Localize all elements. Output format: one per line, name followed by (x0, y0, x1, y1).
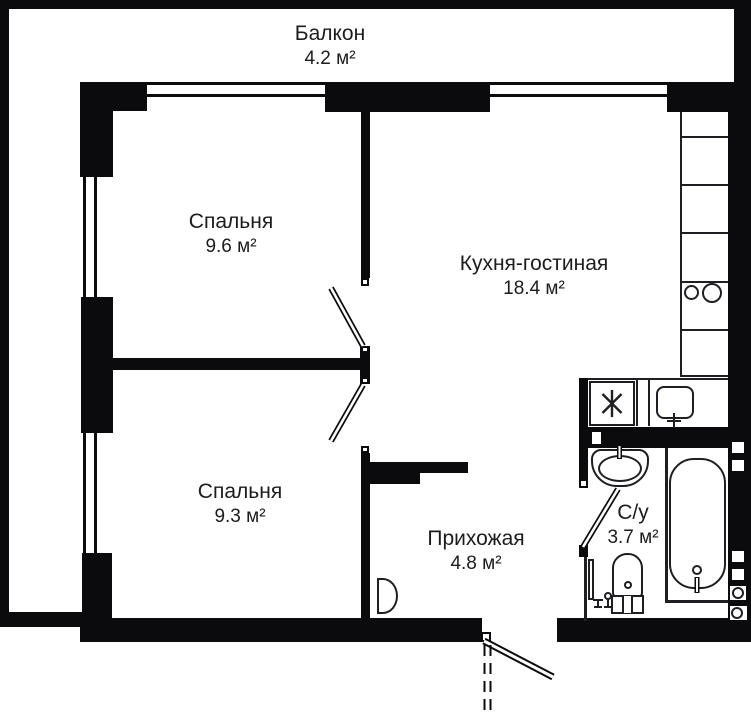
kitchen-counter-line (680, 136, 728, 138)
room-label-bedroom-1: Спальня 9.6 м² (189, 209, 273, 259)
room-label-hallway: Прихожая 4.8 м² (427, 526, 524, 576)
balcony-wall-left (0, 0, 9, 627)
kitchen-counter-line (680, 184, 728, 186)
door-leaf-icon (331, 288, 363, 346)
toilet-drain-icon (624, 581, 632, 589)
room-name: Прихожая (427, 526, 524, 552)
wall-bathroom-left-stub (579, 545, 588, 557)
vent-shaft-icon (729, 548, 747, 565)
wall-bathroom-left-thin (584, 557, 587, 621)
balcony-wall-bottom (0, 612, 82, 627)
toilet-icon (612, 553, 643, 598)
kitchen-counter-line (680, 232, 728, 234)
bathtub-drain-icon (692, 565, 702, 575)
vent-shaft-icon (589, 429, 604, 447)
room-area: 4.2 м² (295, 47, 365, 71)
room-label-bathroom: С/у 3.7 м² (607, 500, 658, 550)
riser-circle (731, 607, 743, 619)
room-label-bedroom-2: Спальня 9.3 м² (198, 479, 282, 529)
door-hinge-marker (361, 377, 369, 384)
wall-top-2 (325, 82, 490, 112)
wall-bedroom1-kitchen (361, 111, 370, 278)
wall-left-2 (81, 297, 113, 433)
balcony-wall-right (734, 0, 751, 84)
window-icon (490, 82, 667, 97)
room-area: 3.7 м² (607, 526, 658, 550)
wall-bathroom-left-upper (579, 448, 588, 479)
entrance-door-icon (484, 641, 553, 712)
door-hinge-marker (361, 446, 369, 453)
room-name: С/у (607, 500, 658, 526)
room-name: Кухня-гостиная (460, 251, 609, 277)
window-icon (83, 177, 97, 297)
cabinet-row-line (588, 378, 728, 380)
vent-shaft-icon (729, 457, 747, 474)
door-hinge-marker (481, 632, 491, 642)
balcony-wall-top (0, 0, 751, 9)
wash-basin-bowl (598, 455, 642, 482)
riser-circle (732, 587, 744, 599)
towel-rail-icon (588, 559, 594, 600)
wall-bedrooms-divider (113, 358, 361, 370)
kitchen-sink-icon (656, 386, 694, 419)
cabinet-divider-line (648, 380, 650, 426)
wall-bottom-left (80, 618, 482, 642)
room-label-balcony: Балкон 4.2 м² (295, 21, 365, 71)
vent-shaft-icon (729, 439, 747, 456)
kitchen-counter-line (680, 281, 728, 283)
room-name: Спальня (198, 479, 282, 505)
room-label-kitchen-living: Кухня-гостиная 18.4 м² (460, 251, 609, 301)
kitchen-counter-line (680, 329, 728, 331)
toilet-tank-detail (622, 596, 633, 613)
door-hinge-marker (361, 346, 369, 353)
washing-machine-icon (589, 381, 635, 426)
room-area: 9.6 м² (189, 235, 273, 259)
window-icon (147, 82, 325, 97)
wall-bathroom-top (579, 427, 751, 448)
wall-bottom-right (557, 618, 751, 642)
room-name: Балкон (295, 21, 365, 47)
cabinet-divider-line (636, 380, 638, 426)
room-area: 9.3 м² (198, 505, 282, 529)
door-arc-icon (377, 578, 398, 614)
door-hinge-marker (579, 479, 588, 488)
bathtub-niche-bottom-line (665, 600, 728, 603)
bathtub-niche-line (665, 448, 668, 603)
cooktop-icon (684, 285, 699, 300)
window-icon (83, 433, 97, 553)
vent-shaft-icon (729, 566, 747, 583)
room-area: 18.4 м² (460, 277, 609, 301)
wall-hallway-left (361, 453, 370, 621)
wall-hallway-top (370, 462, 420, 484)
room-area: 4.8 м² (427, 552, 524, 576)
water-valve-icon (593, 593, 612, 607)
kitchen-counter-edge (680, 112, 682, 377)
wall-left-1 (80, 82, 113, 177)
floor-plan: Балкон 4.2 м² Спальня 9.6 м² Кухня-гости… (0, 0, 751, 713)
wall-bathroom-stub (579, 378, 588, 427)
door-leaf-icon (331, 385, 363, 441)
cooktop-icon (702, 283, 722, 303)
wall-hallway-top-thin (420, 462, 468, 473)
kitchen-counter-line (680, 375, 728, 377)
door-hinge-marker (361, 278, 369, 286)
room-name: Спальня (189, 209, 273, 235)
